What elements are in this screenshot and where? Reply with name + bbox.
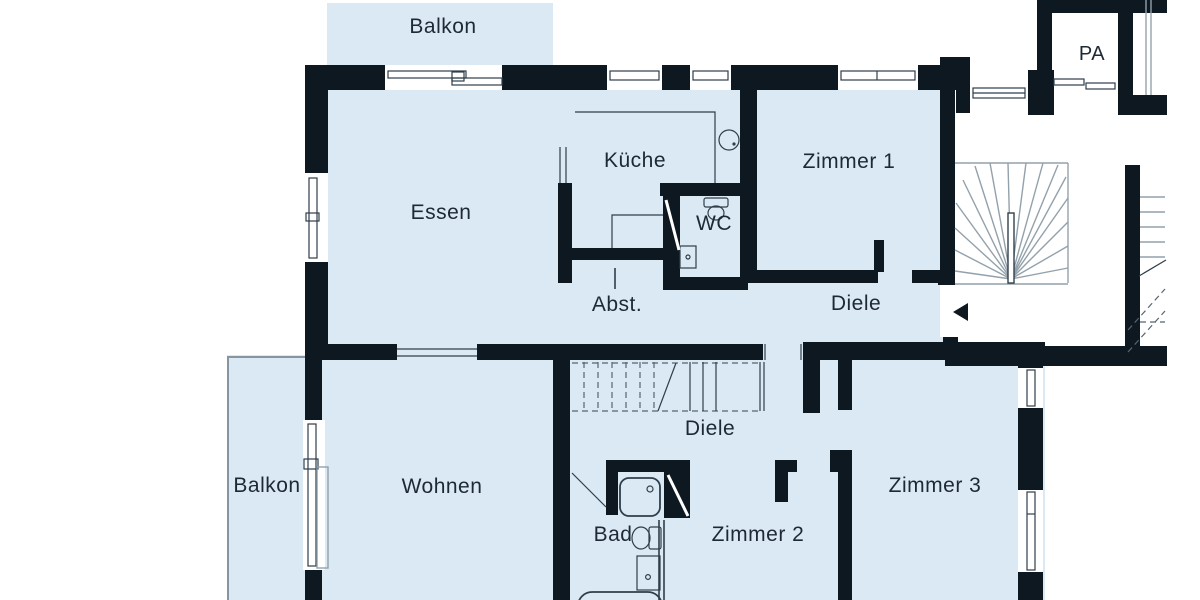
stairwell-window [970, 84, 1028, 104]
room-label-hall-upper: Diele [831, 292, 881, 315]
room1-door [874, 240, 884, 272]
room-label-wc: WC [696, 212, 732, 235]
dining-window [303, 173, 328, 262]
entrance-door-opening [940, 285, 955, 337]
room1-window [838, 65, 918, 90]
room-label-balcony-top: Balkon [409, 15, 476, 38]
kitchen-window-1 [607, 65, 662, 90]
room3-window-1 [1018, 368, 1043, 408]
room-label-room1: Zimmer 1 [803, 150, 896, 173]
room3-window-2 [1018, 490, 1043, 572]
floor-plan: Balkon Essen Küche WC Zimmer 1 Abst. Die… [0, 0, 1200, 600]
room-label-dining: Essen [411, 201, 472, 224]
balcony-door-top [385, 65, 502, 90]
kitchen-window-2 [690, 65, 731, 90]
room-label-living: Wohnen [402, 475, 483, 498]
room-label-storage: Abst. [592, 293, 642, 316]
room-label-bath: Bad [594, 523, 633, 546]
room-label-room3: Zimmer 3 [889, 474, 982, 497]
balcony-door-bottom [303, 420, 328, 570]
room-label-hall-lower: Diele [685, 417, 735, 440]
room-label-elevator: PA [1079, 43, 1105, 65]
floor-plan-canvas: Balkon Essen Küche WC Zimmer 1 Abst. Die… [0, 0, 1200, 600]
room-label-kitchen: Küche [604, 149, 666, 172]
room-label-balcony-bottom: Balkon [233, 474, 300, 497]
room2-door [664, 472, 690, 518]
room-label-room2: Zimmer 2 [712, 523, 805, 546]
stair-newel [1008, 213, 1014, 283]
